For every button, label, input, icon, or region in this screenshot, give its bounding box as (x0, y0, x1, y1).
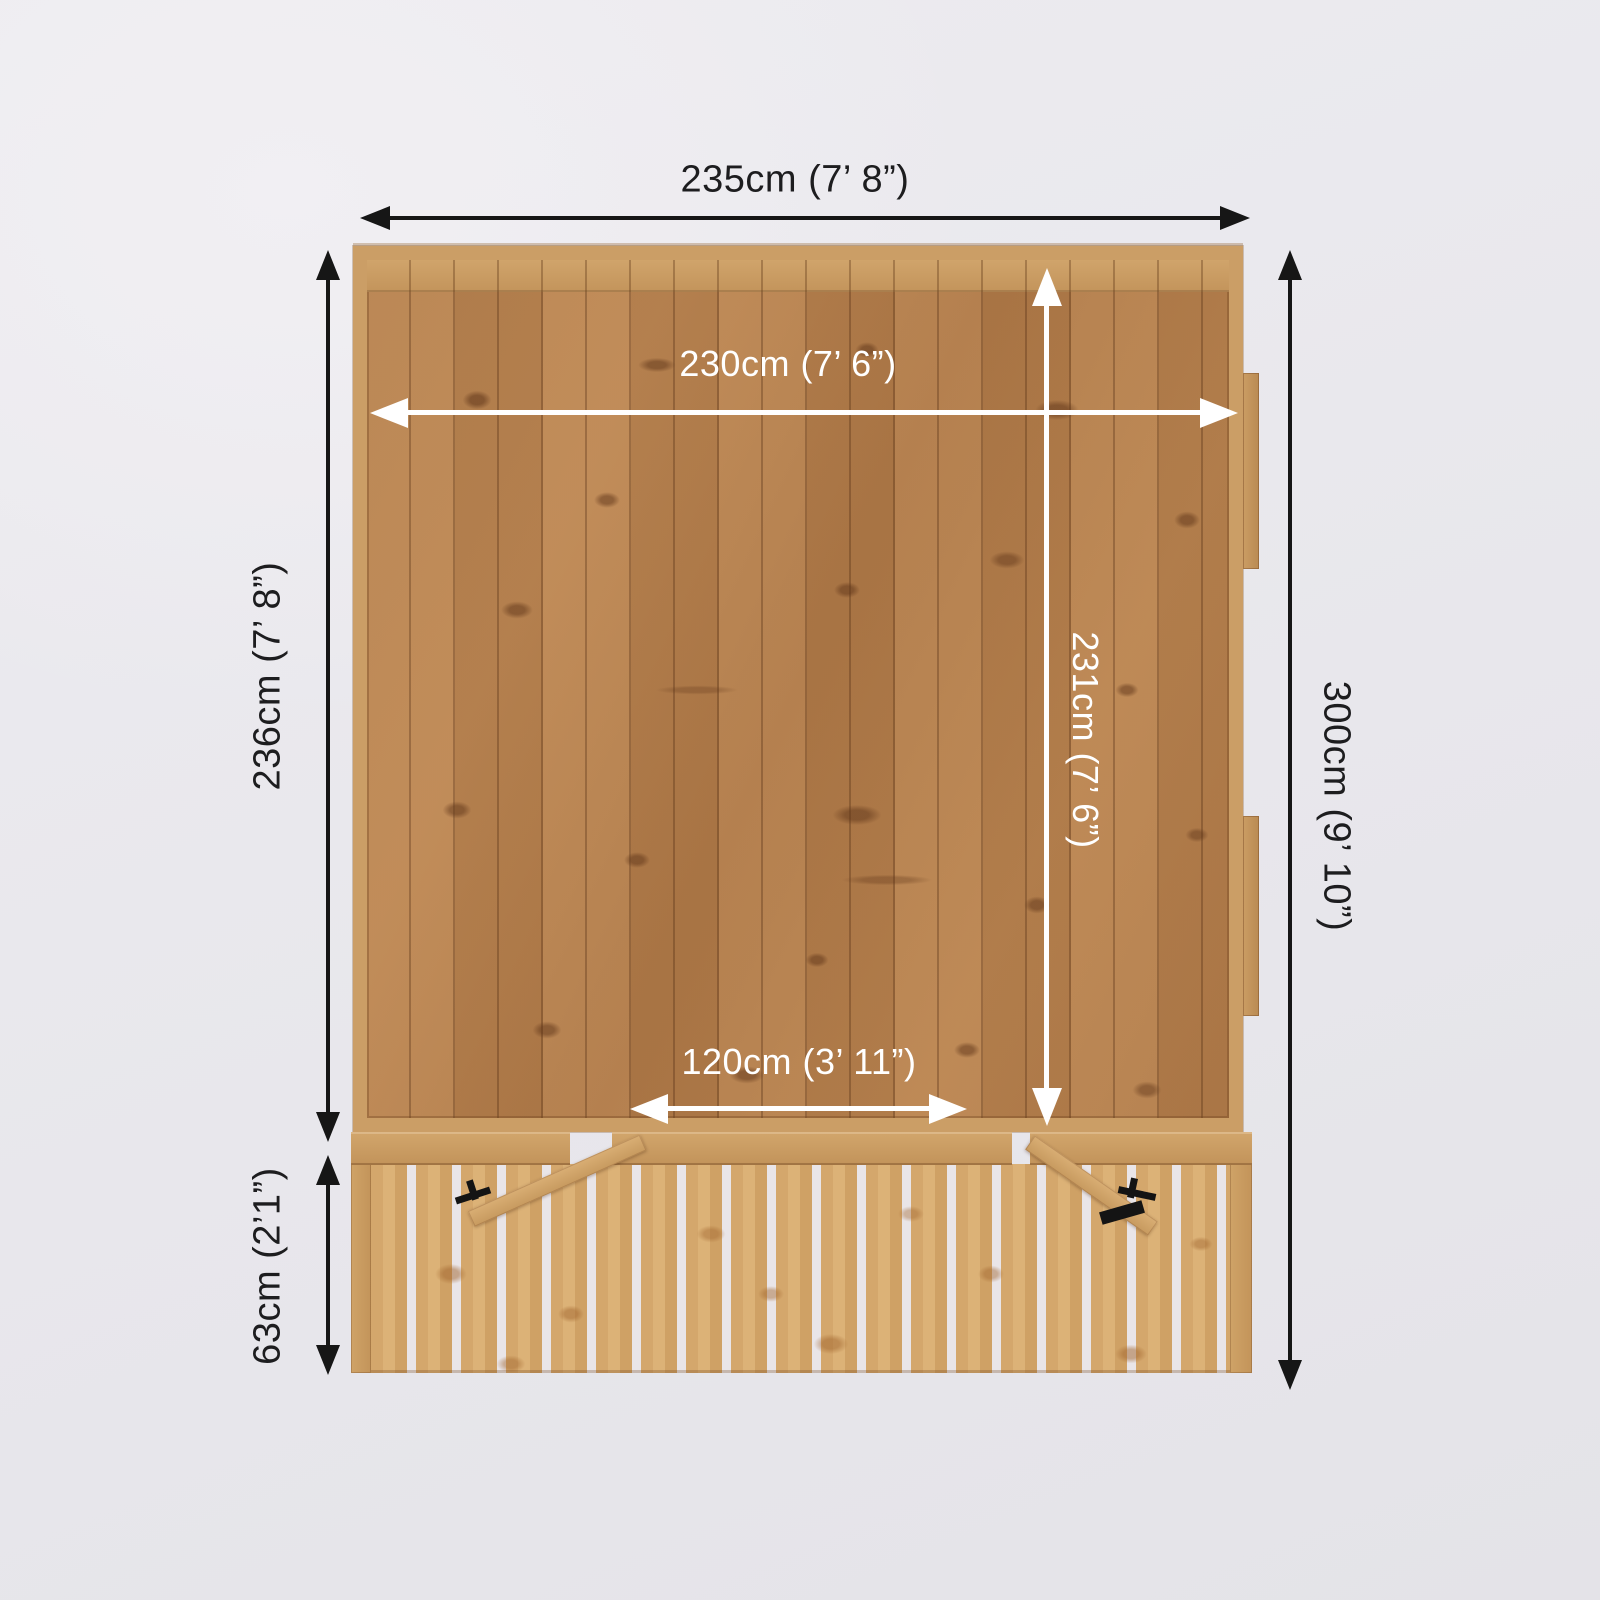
internal-depth-label: 231cm (7’ 6”) (1064, 631, 1106, 848)
veranda-depth-arrow-icon (326, 1185, 330, 1345)
main-depth-arrow-icon (326, 280, 330, 1112)
product-dimension-diagram: 235cm (7’ 8”) 230cm (7’ 6”) 236cm (7’ 8”… (0, 0, 1600, 1600)
main-depth-label: 236cm (7’ 8”) (247, 562, 290, 791)
window-sill-upper (1243, 373, 1259, 569)
total-depth-arrow-icon (1288, 280, 1292, 1360)
veranda-rail-left (351, 1132, 570, 1165)
external-width-arrow-icon (390, 216, 1220, 220)
total-depth-label: 300cm (9’ 10”) (1315, 681, 1358, 932)
internal-depth-arrow-icon (1044, 306, 1049, 1088)
door-width-label: 120cm (3’ 11”) (681, 1041, 916, 1083)
veranda-edge-board-right (1230, 1132, 1252, 1373)
internal-width-label: 230cm (7’ 6”) (679, 343, 896, 385)
window-sill-lower (1243, 816, 1259, 1016)
internal-width-arrow-icon (408, 410, 1200, 415)
door-width-arrow-icon (668, 1106, 929, 1111)
veranda-rail-middle (612, 1132, 1012, 1165)
external-width-label: 235cm (7’ 8”) (681, 159, 910, 202)
shed-top-wall-board (367, 260, 1229, 292)
veranda-depth-label: 63cm (2’1”) (247, 1167, 290, 1365)
veranda-decking (351, 1132, 1252, 1373)
veranda-edge-board-left (351, 1132, 371, 1373)
